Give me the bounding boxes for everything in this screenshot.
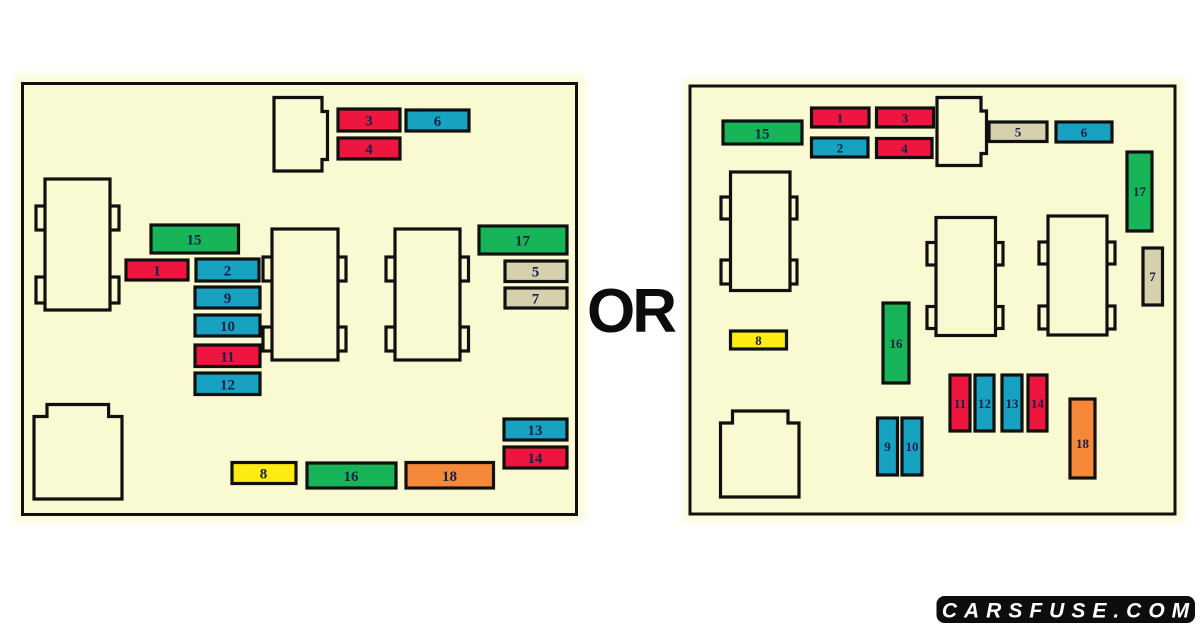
svg-text:3: 3 [365,114,373,130]
svg-text:3: 3 [902,111,909,126]
svg-text:14: 14 [1031,396,1045,411]
svg-text:10: 10 [906,439,919,454]
svg-text:1: 1 [153,264,161,280]
svg-text:11: 11 [954,396,966,411]
svg-text:18: 18 [442,469,457,485]
svg-text:6: 6 [1081,125,1088,140]
svg-text:18: 18 [1076,436,1090,451]
svg-text:5: 5 [1015,125,1022,140]
svg-text:11: 11 [220,350,234,366]
svg-text:17: 17 [515,234,531,250]
svg-text:13: 13 [1006,396,1020,411]
svg-text:15: 15 [755,127,770,143]
svg-text:6: 6 [434,114,442,130]
svg-text:10: 10 [220,319,235,335]
svg-text:1: 1 [837,111,844,126]
svg-text:5: 5 [532,265,540,281]
svg-text:12: 12 [978,396,991,411]
svg-text:8: 8 [260,467,268,483]
svg-text:4: 4 [901,141,908,156]
svg-text:9: 9 [224,291,232,307]
svg-text:17: 17 [1133,184,1147,199]
svg-text:12: 12 [220,378,235,394]
svg-text:2: 2 [224,264,232,280]
svg-text:OR: OR [587,277,676,346]
svg-text:2: 2 [837,141,844,156]
svg-text:13: 13 [528,423,543,439]
svg-text:8: 8 [755,333,762,348]
svg-text:7: 7 [1149,269,1156,284]
svg-text:7: 7 [532,292,540,308]
svg-text:4: 4 [365,142,373,158]
svg-text:16: 16 [890,336,904,351]
svg-text:9: 9 [884,439,891,454]
svg-text:15: 15 [187,233,202,249]
svg-text:CARSFUSE.COM: CARSFUSE.COM [942,600,1196,623]
svg-text:16: 16 [344,469,360,485]
svg-text:14: 14 [528,451,544,467]
